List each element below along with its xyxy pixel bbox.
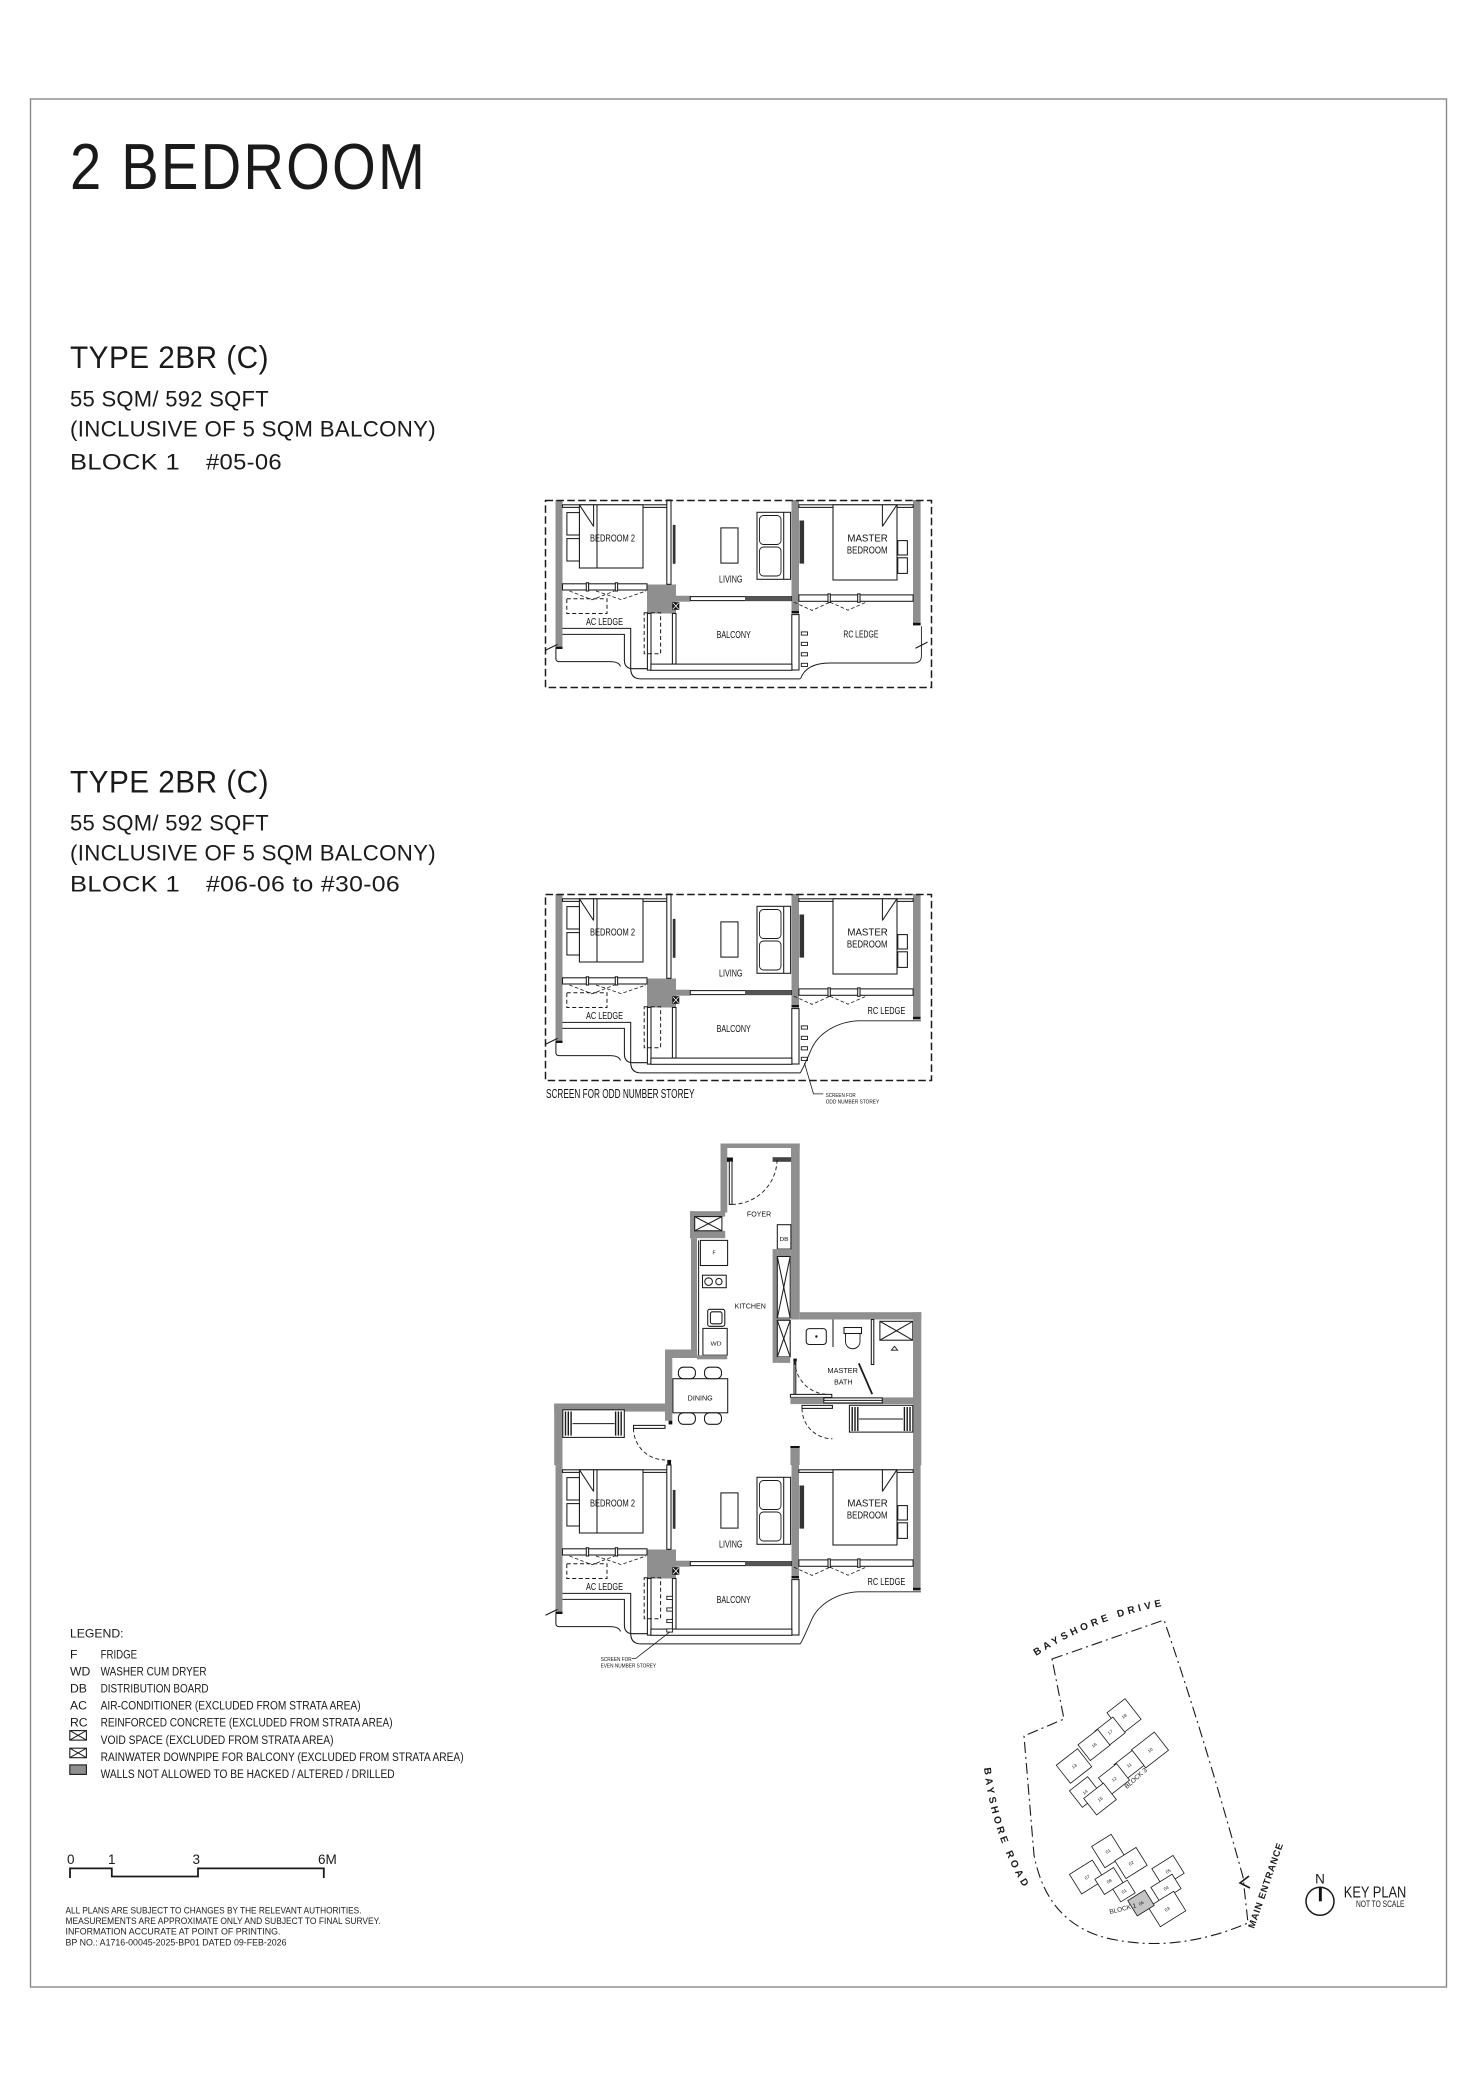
svg-text:MASTER: MASTER xyxy=(828,1368,858,1375)
svg-text:DISTRIBUTION BOARD: DISTRIBUTION BOARD xyxy=(101,1682,209,1696)
svg-text:F: F xyxy=(712,1251,715,1257)
svg-text:KITCHEN: KITCHEN xyxy=(735,1304,766,1311)
svg-text:BAYSHORE ROAD: BAYSHORE ROAD xyxy=(981,1767,1032,1891)
svg-text:TYPE 2BR (C): TYPE 2BR (C) xyxy=(70,339,269,375)
svg-text:N: N xyxy=(1315,1871,1325,1886)
svg-text:NOT TO SCALE: NOT TO SCALE xyxy=(1356,1899,1405,1909)
svg-text:AIR-CONDITIONER (EXCLUDED FROM: AIR-CONDITIONER (EXCLUDED FROM STRATA AR… xyxy=(101,1699,361,1713)
svg-text:55 SQM/ 592 SQFT: 55 SQM/ 592 SQFT xyxy=(70,811,269,836)
svg-text:(INCLUSIVE OF 5 SQM BALCONY): (INCLUSIVE OF 5 SQM BALCONY) xyxy=(70,417,436,442)
svg-text:SCREEN FOR ODD NUMBER STOREY: SCREEN FOR ODD NUMBER STOREY xyxy=(546,1086,695,1101)
svg-text:REINFORCED CONCRETE (EXCLUDED: REINFORCED CONCRETE (EXCLUDED FROM STRAT… xyxy=(101,1716,393,1730)
svg-text:BAYSHORE DRIVE: BAYSHORE DRIVE xyxy=(1032,1598,1166,1659)
svg-text:0: 0 xyxy=(67,1852,75,1867)
svg-text:RC LEDGE: RC LEDGE xyxy=(868,1006,906,1017)
svg-text:55 SQM/ 592 SQFT: 55 SQM/ 592 SQFT xyxy=(70,387,269,412)
svg-text:WD: WD xyxy=(70,1664,91,1678)
svg-text:ODD NUMBER STOREY: ODD NUMBER STOREY xyxy=(826,1100,880,1106)
svg-text:VOID SPACE (EXCLUDED FROM STRA: VOID SPACE (EXCLUDED FROM STRATA AREA) xyxy=(101,1733,334,1747)
svg-text:BLOCK 1: BLOCK 1 xyxy=(70,872,180,897)
svg-text:RC LEDGE: RC LEDGE xyxy=(843,629,878,640)
svg-text:WASHER CUM DRYER: WASHER CUM DRYER xyxy=(101,1664,207,1678)
svg-text:RC: RC xyxy=(70,1716,88,1730)
svg-text:3: 3 xyxy=(193,1852,201,1867)
svg-text:DB: DB xyxy=(780,1237,789,1243)
svg-text:WALLS NOT ALLOWED TO BE HACKED: WALLS NOT ALLOWED TO BE HACKED / ALTERED… xyxy=(101,1767,395,1781)
svg-text:RC LEDGE: RC LEDGE xyxy=(868,1577,906,1588)
svg-text:LEGEND:: LEGEND: xyxy=(70,1627,124,1641)
svg-text:RAINWATER DOWNPIPE FOR BALCONY: RAINWATER DOWNPIPE FOR BALCONY (EXCLUDED… xyxy=(101,1750,464,1764)
svg-text:#06-06 to #30-06: #06-06 to #30-06 xyxy=(206,872,400,897)
svg-text:MEASUREMENTS ARE APPROXIMATE O: MEASUREMENTS ARE APPROXIMATE ONLY AND SU… xyxy=(66,1916,381,1926)
svg-text:BLOCK 1: BLOCK 1 xyxy=(1109,1902,1138,1916)
svg-text:1: 1 xyxy=(108,1852,116,1867)
svg-text:WD: WD xyxy=(711,1342,722,1348)
svg-text:DB: DB xyxy=(70,1682,87,1696)
svg-text:(INCLUSIVE OF 5 SQM BALCONY): (INCLUSIVE OF 5 SQM BALCONY) xyxy=(70,841,436,866)
svg-text:#05-06: #05-06 xyxy=(206,450,282,475)
svg-text:EVEN NUMBER STOREY: EVEN NUMBER STOREY xyxy=(601,1664,657,1670)
svg-text:2 BEDROOM: 2 BEDROOM xyxy=(70,130,427,203)
svg-text:BP NO.: A1716-00045-2025-BP01: BP NO.: A1716-00045-2025-BP01 DATED 09-F… xyxy=(66,1937,287,1947)
svg-text:BLOCK 1: BLOCK 1 xyxy=(70,450,180,475)
svg-text:BATH: BATH xyxy=(834,1380,852,1387)
svg-text:SCREEN FOR: SCREEN FOR xyxy=(826,1093,856,1099)
svg-text:FOYER: FOYER xyxy=(747,1212,771,1219)
svg-text:INFORMATION ACCURATE AT POINT: INFORMATION ACCURATE AT POINT OF PRINTIN… xyxy=(66,1927,281,1937)
svg-text:TYPE 2BR (C): TYPE 2BR (C) xyxy=(70,764,269,800)
svg-text:FRIDGE: FRIDGE xyxy=(101,1647,138,1661)
svg-text:MAIN ENTRANCE: MAIN ENTRANCE xyxy=(1246,1841,1286,1930)
svg-text:SCREEN FOR: SCREEN FOR xyxy=(601,1657,632,1663)
svg-text:AC: AC xyxy=(70,1699,87,1713)
svg-text:DINING: DINING xyxy=(688,1396,713,1403)
svg-text:ALL PLANS ARE SUBJECT TO CHANG: ALL PLANS ARE SUBJECT TO CHANGES BY THE … xyxy=(66,1906,362,1916)
svg-text:6M: 6M xyxy=(318,1852,337,1867)
svg-text:F: F xyxy=(70,1647,77,1661)
